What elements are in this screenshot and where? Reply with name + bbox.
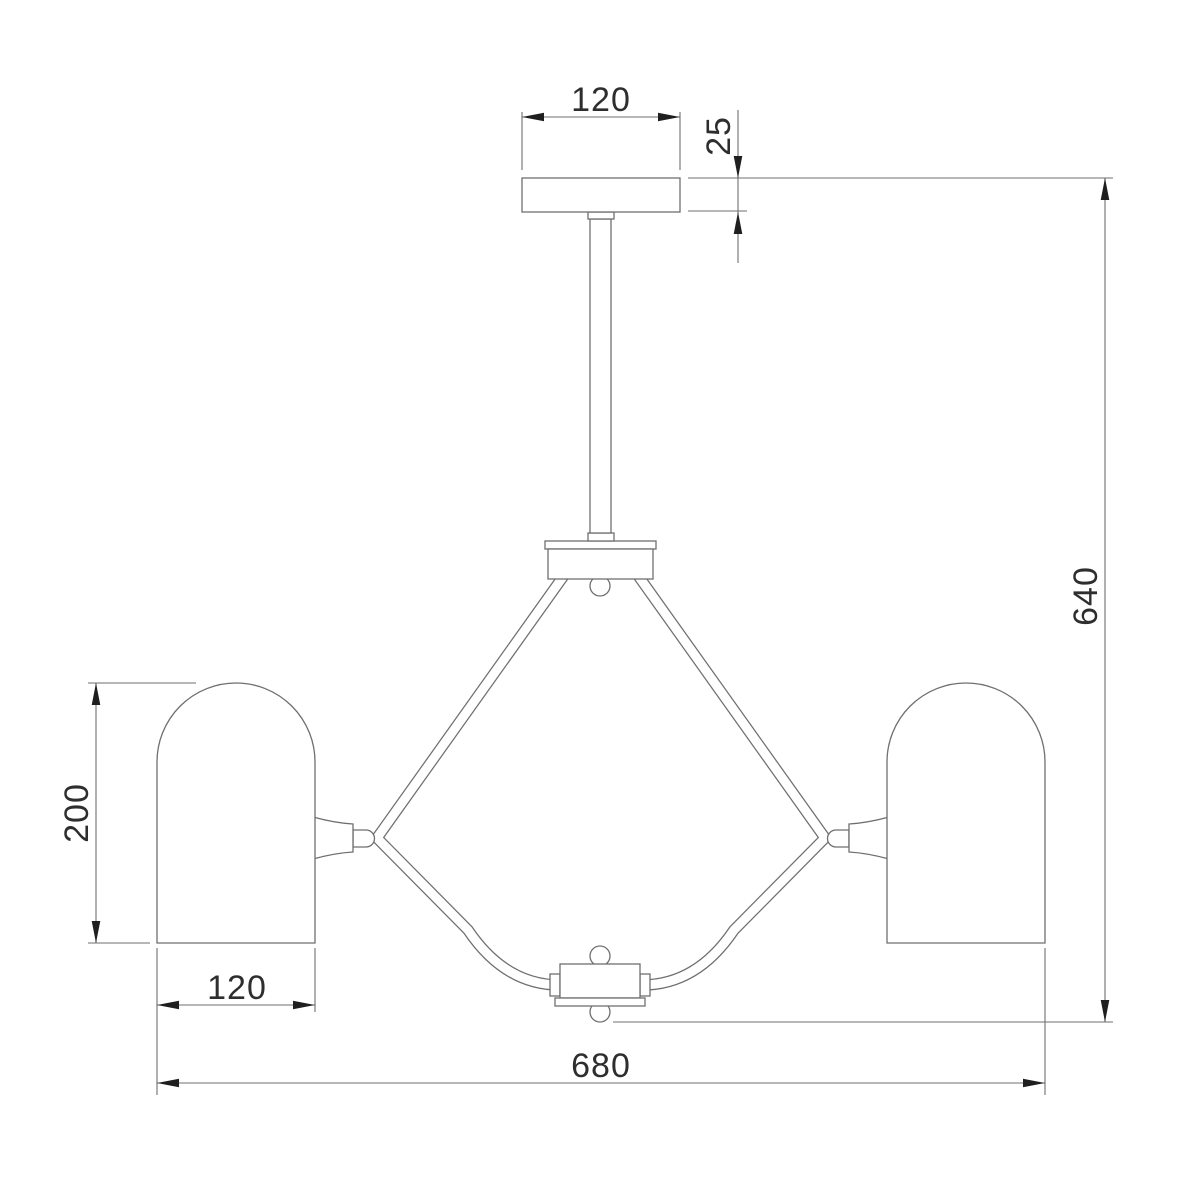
arrowhead-up <box>92 683 101 705</box>
bottom-hub-top-knob <box>590 946 610 966</box>
shade-assembly-right <box>828 683 1046 943</box>
dim-label-shade-height: 200 <box>58 783 96 843</box>
dim-label-overall-width: 680 <box>571 1047 631 1085</box>
stem-rod <box>590 219 611 533</box>
canopy-plate <box>522 178 680 212</box>
shade-right-socket <box>849 817 889 859</box>
dimension-shade-width: 120 <box>157 948 315 1095</box>
frame-arm-right-fill <box>617 574 825 985</box>
lamp-dimension-drawing: 120 25 640 200 120 680 <box>0 0 1200 1200</box>
arrowhead-up <box>1101 178 1110 200</box>
shade-left-socket <box>313 817 353 859</box>
dimension-canopy-thickness: 25 <box>688 110 1113 263</box>
arrowhead-down <box>734 156 743 178</box>
bottom-hub-left-collar <box>550 974 560 996</box>
bottom-hub <box>550 946 650 1022</box>
frame-arm-left-fill <box>377 574 585 985</box>
arrowhead-left <box>522 113 544 122</box>
dim-label-canopy-thickness: 25 <box>700 116 738 156</box>
arrowhead-right <box>658 113 680 122</box>
stem-lower-collar <box>588 533 614 541</box>
ceiling-mount-and-stem <box>522 178 680 596</box>
dim-label-canopy-width: 120 <box>571 81 631 119</box>
frame-arm-left-outline <box>377 574 585 985</box>
stem-upper-collar <box>588 212 614 219</box>
shade-left-neck <box>353 830 375 847</box>
bottom-hub-flange <box>555 998 645 1006</box>
technical-drawing-canvas: 120 25 640 200 120 680 <box>0 0 1200 1200</box>
arrowhead-down <box>1101 1000 1110 1022</box>
top-hub-body <box>548 549 653 579</box>
arrowhead-up <box>734 212 743 234</box>
shade-left <box>157 683 315 943</box>
arrowhead-left <box>157 1001 179 1010</box>
dim-label-shade-width: 120 <box>207 969 267 1007</box>
arrowhead-down <box>92 921 101 943</box>
frame-arm-left <box>377 574 585 985</box>
frame-arm-right <box>617 574 825 985</box>
arrowhead-left <box>157 1079 179 1088</box>
arrowhead-right <box>1023 1079 1045 1088</box>
shade-right <box>887 683 1045 943</box>
bottom-hub-body <box>560 964 640 998</box>
top-hub-flange <box>545 541 656 549</box>
dim-label-overall-height: 640 <box>1067 566 1105 626</box>
frame-arm-right-outline <box>617 574 825 985</box>
arrowhead-right <box>293 1001 315 1010</box>
dimension-canopy-width: 120 <box>522 81 680 170</box>
shade-right-neck <box>828 830 850 847</box>
shade-assembly-left <box>157 683 375 943</box>
bottom-hub-right-collar <box>640 974 650 996</box>
